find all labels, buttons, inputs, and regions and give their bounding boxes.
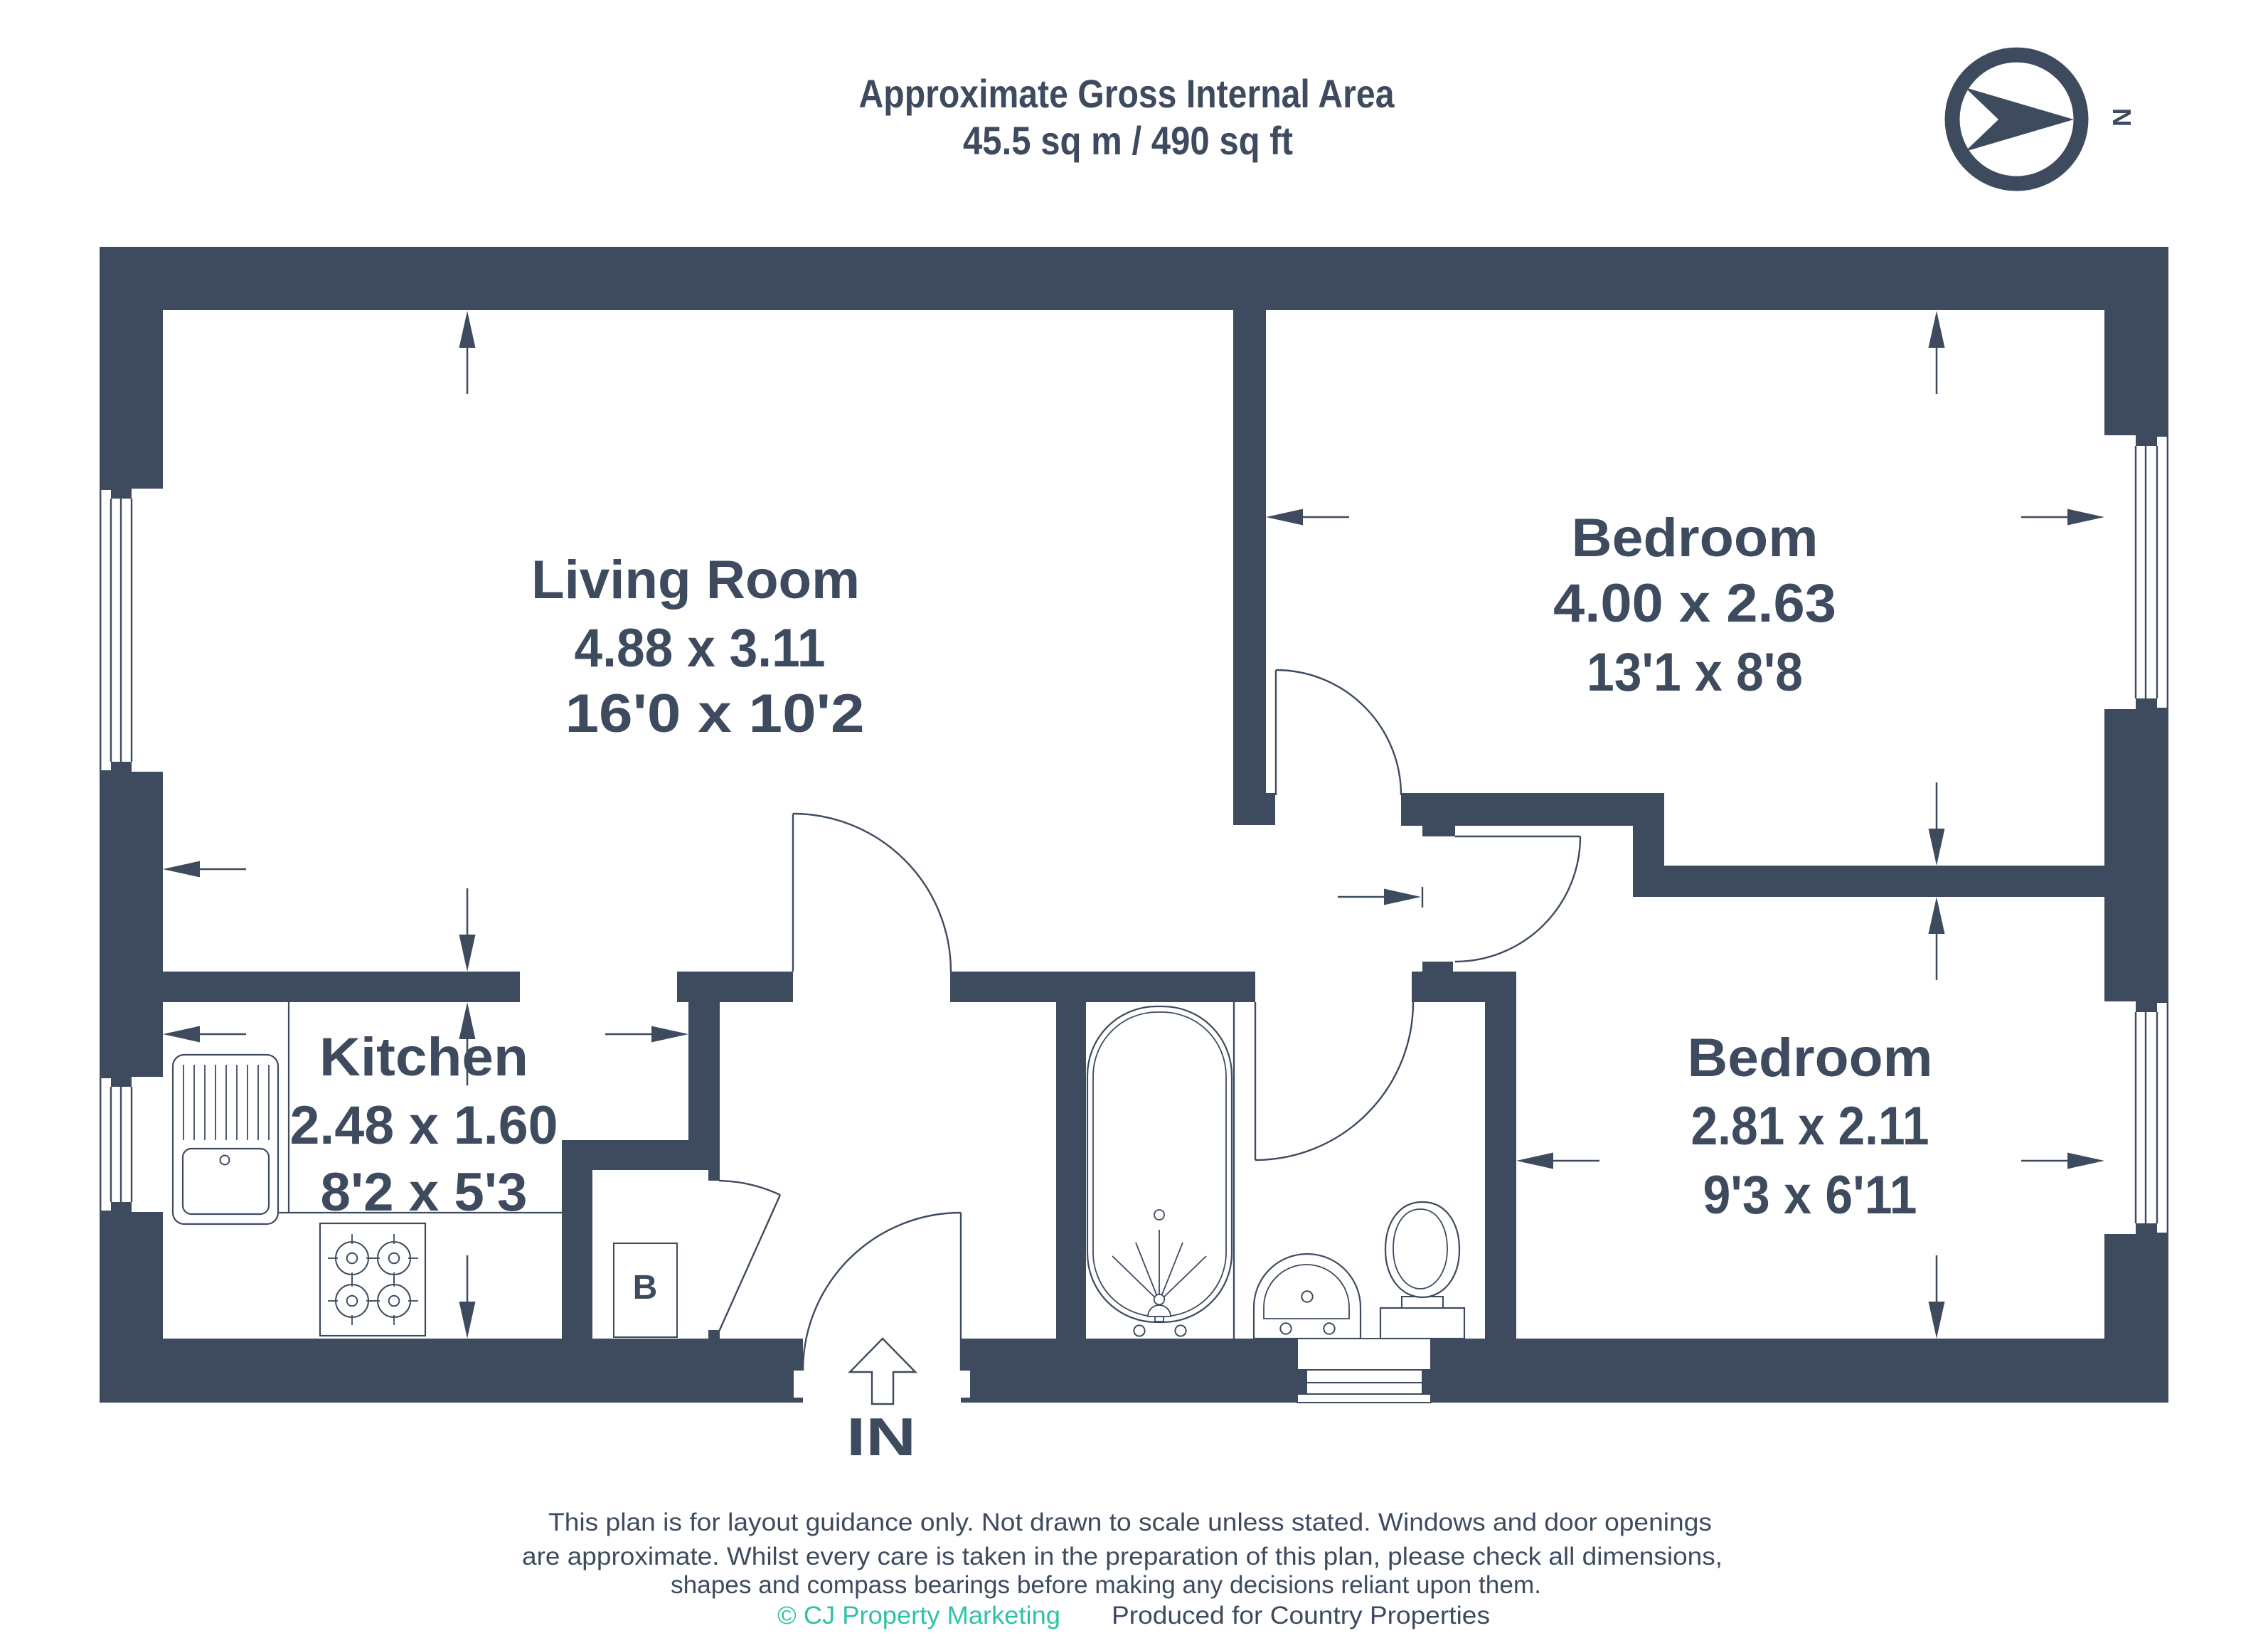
svg-text:Bedroom: Bedroom xyxy=(1688,1028,1933,1088)
svg-text:2.81 x 2.11: 2.81 x 2.11 xyxy=(1691,1096,1929,1156)
svg-text:9'3 x 6'11: 9'3 x 6'11 xyxy=(1703,1165,1917,1225)
svg-text:Kitchen: Kitchen xyxy=(319,1027,528,1087)
svg-text:© CJ Property Marketing: © CJ Property Marketing xyxy=(777,1602,1060,1629)
svg-text:45.5 sq m / 490 sq ft: 45.5 sq m / 490 sq ft xyxy=(963,118,1293,163)
svg-text:4.88 x 3.11: 4.88 x 3.11 xyxy=(575,618,826,679)
svg-text:16'0 x 10'2: 16'0 x 10'2 xyxy=(565,684,865,744)
svg-text:are approximate. Whilst every: are approximate. Whilst every care is ta… xyxy=(522,1543,1723,1570)
svg-text:Bedroom: Bedroom xyxy=(1572,508,1819,568)
svg-text:shapes and compass bearings be: shapes and compass bearings before makin… xyxy=(671,1571,1541,1599)
svg-text:N: N xyxy=(2107,108,2136,127)
svg-text:B: B xyxy=(633,1269,658,1307)
svg-text:IN: IN xyxy=(846,1407,916,1467)
svg-text:13'1 x 8'8: 13'1 x 8'8 xyxy=(1587,642,1803,703)
svg-text:2.48 x 1.60: 2.48 x 1.60 xyxy=(290,1095,558,1156)
svg-text:Living Room: Living Room xyxy=(531,550,860,610)
svg-text:Approximate Gross Internal Are: Approximate Gross Internal Area xyxy=(859,71,1395,116)
svg-text:Produced for Country Propertie: Produced for Country Properties xyxy=(1112,1602,1490,1629)
svg-text:4.00 x 2.63: 4.00 x 2.63 xyxy=(1553,573,1836,634)
svg-text:This plan is for layout guidan: This plan is for layout guidance only. N… xyxy=(548,1509,1712,1536)
svg-text:8'2 x 5'3: 8'2 x 5'3 xyxy=(321,1162,528,1223)
